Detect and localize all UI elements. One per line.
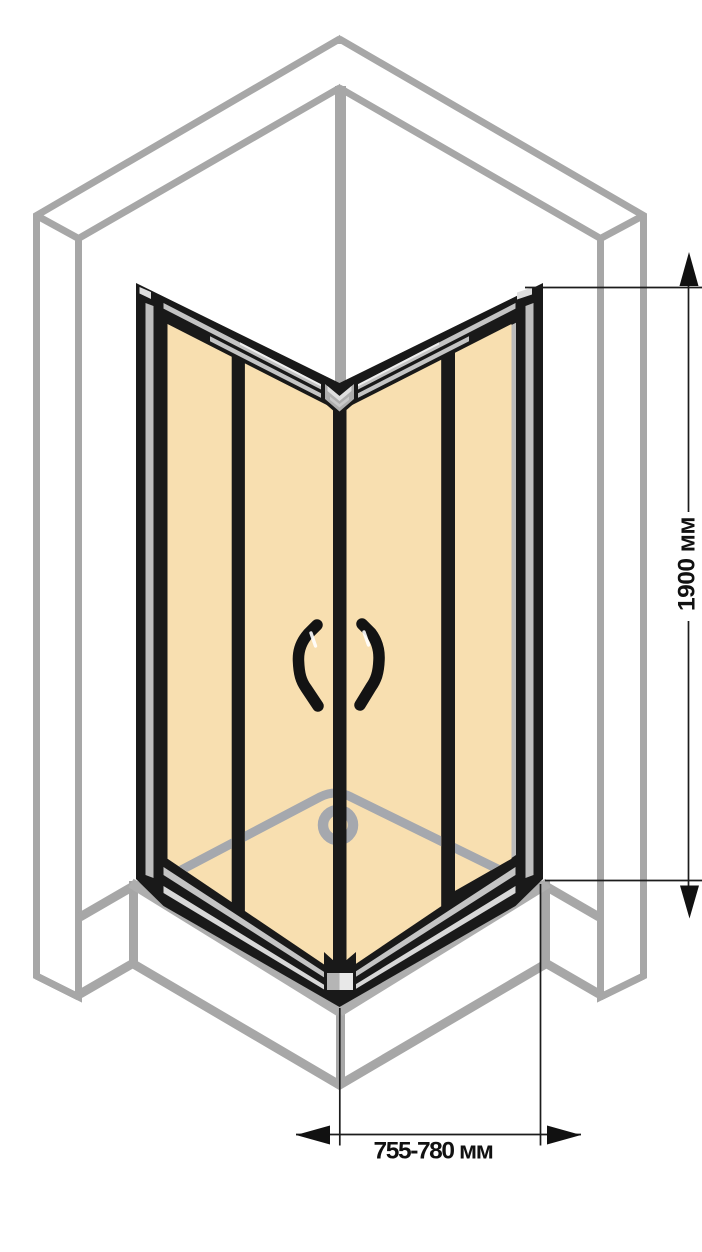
svg-text:1900 мм: 1900 мм [674, 517, 701, 611]
svg-text:755-780 мм: 755-780 мм [374, 1138, 493, 1165]
